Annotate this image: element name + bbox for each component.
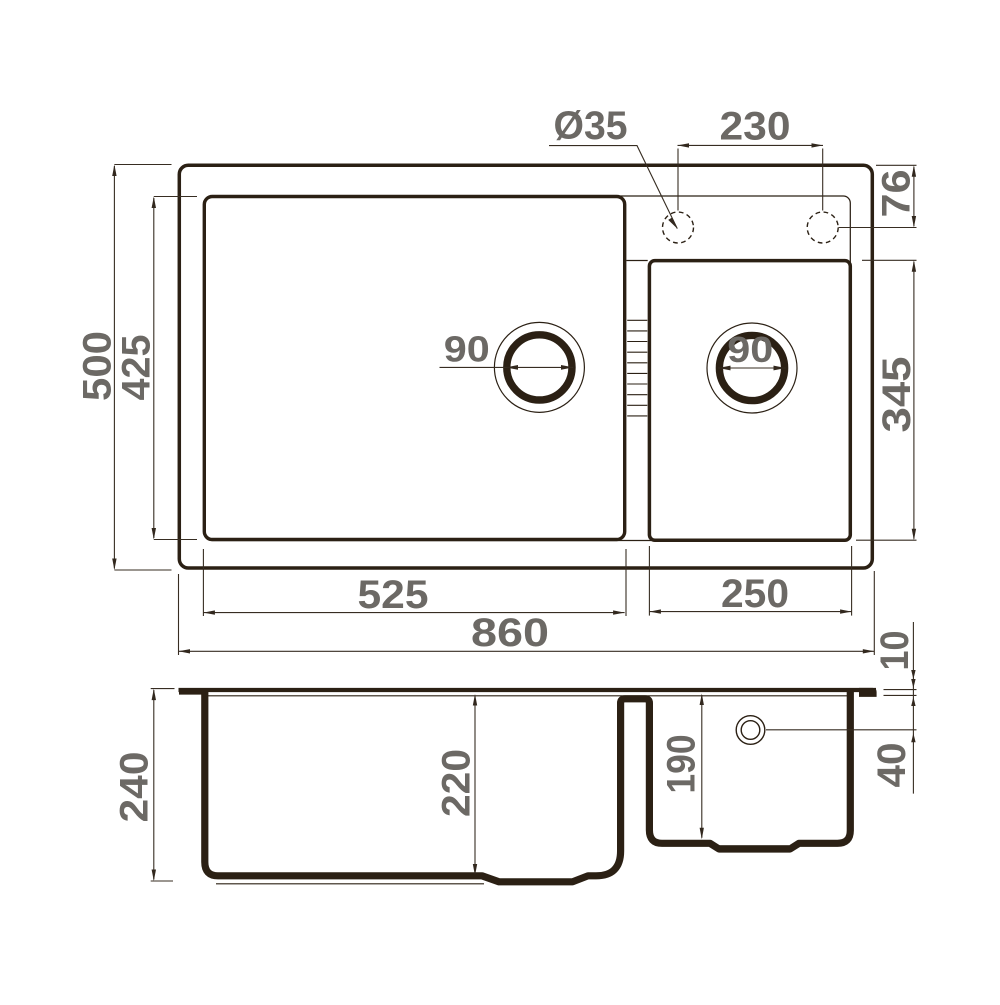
svg-text:525: 525 [358,573,429,617]
svg-text:250: 250 [721,572,789,616]
svg-text:860: 860 [471,611,549,655]
svg-text:345: 345 [875,357,919,433]
svg-text:90: 90 [444,328,490,369]
svg-text:240: 240 [113,752,157,823]
svg-text:76: 76 [875,170,919,218]
svg-text:10: 10 [873,631,917,671]
svg-text:40: 40 [870,743,914,788]
svg-text:500: 500 [76,331,120,401]
svg-text:Ø35: Ø35 [554,104,628,148]
svg-text:425: 425 [115,335,159,401]
svg-text:90: 90 [727,329,773,370]
svg-text:220: 220 [435,749,479,817]
svg-text:230: 230 [720,105,791,149]
svg-text:190: 190 [660,735,704,794]
